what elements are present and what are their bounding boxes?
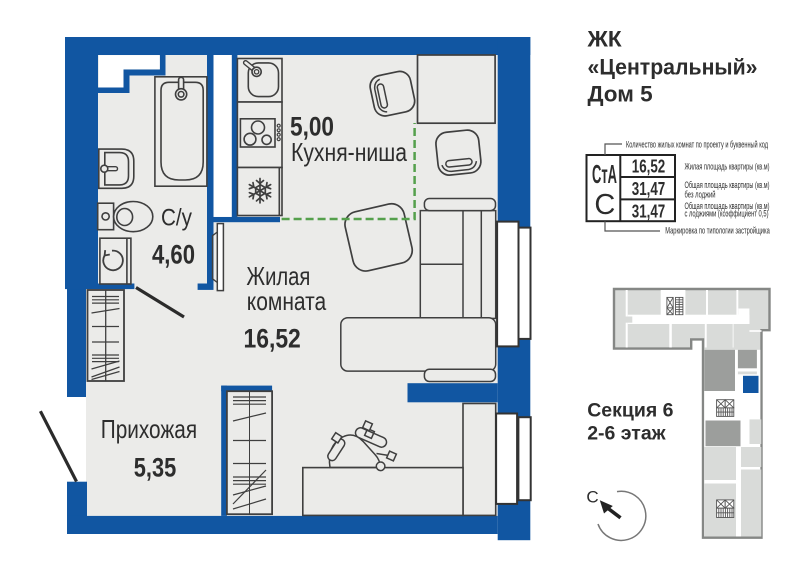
svg-text:ЖК: ЖК <box>587 27 622 52</box>
svg-text:31,47: 31,47 <box>632 178 666 199</box>
svg-text:с лоджиями (коэффициент 0,5): с лоджиями (коэффициент 0,5) <box>685 209 769 219</box>
svg-text:комната: комната <box>247 286 327 316</box>
svg-text:Кухня-ниша: Кухня-ниша <box>291 137 407 167</box>
svg-text:СтА: СтА <box>592 159 617 189</box>
svg-text:31,47: 31,47 <box>632 200 666 221</box>
svg-text:Прихожая: Прихожая <box>101 414 197 444</box>
svg-text:4,60: 4,60 <box>152 240 195 270</box>
svg-text:«Центральный»: «Центральный» <box>588 55 758 80</box>
svg-text:Жилая площадь квартиры (кв.м): Жилая площадь квартиры (кв.м) <box>685 162 770 172</box>
svg-text:5,00: 5,00 <box>290 112 334 142</box>
svg-text:Дом 5: Дом 5 <box>588 82 653 107</box>
svg-text:без лоджий: без лоджий <box>685 190 716 200</box>
svg-text:5,35: 5,35 <box>134 452 176 482</box>
svg-text:2-6 этаж: 2-6 этаж <box>587 423 666 445</box>
svg-text:Общая площадь квартиры (кв.м): Общая площадь квартиры (кв.м) <box>685 180 770 190</box>
svg-text:Маркировка по типологии застро: Маркировка по типологии застройщика <box>665 226 770 236</box>
svg-text:Секция 6: Секция 6 <box>587 400 673 422</box>
svg-text:Количество жилых комнат по про: Количество жилых комнат по проекту и бук… <box>626 140 768 150</box>
svg-text:16,52: 16,52 <box>244 324 301 354</box>
svg-text:16,52: 16,52 <box>632 156 666 177</box>
svg-text:С/у: С/у <box>161 205 192 232</box>
svg-text:С: С <box>586 488 598 507</box>
svg-text:С: С <box>594 189 615 221</box>
